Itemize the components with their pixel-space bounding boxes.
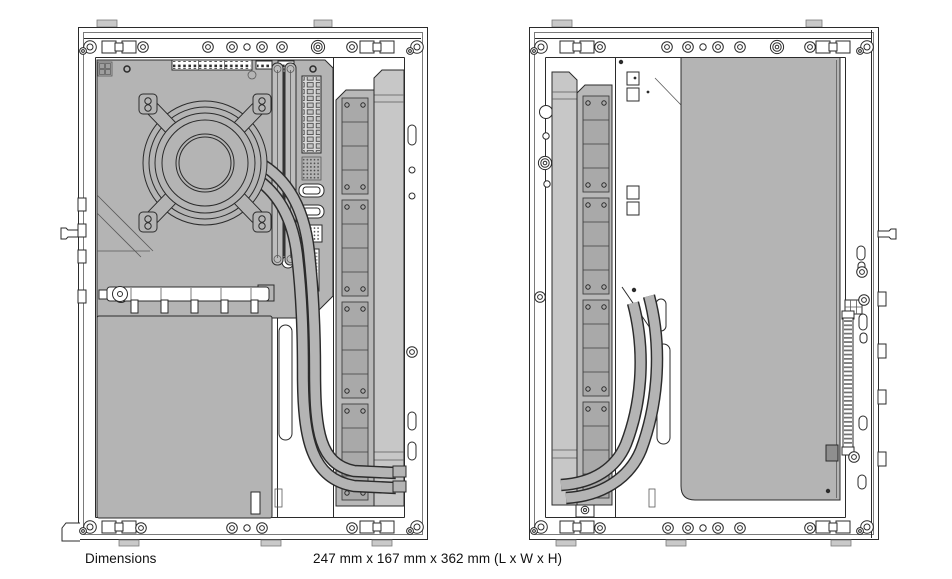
drawing-canvas xyxy=(0,0,952,548)
psu-block xyxy=(97,316,272,518)
side-panel-latch-handle xyxy=(878,229,896,239)
radiator-fan-assembly xyxy=(552,72,612,505)
left-side-view xyxy=(61,20,428,546)
atx-24pin-connector xyxy=(302,76,321,153)
right-side-view xyxy=(530,20,897,546)
gpu-block xyxy=(681,58,840,501)
spec-value: 247 mm x 167 mm x 362 mm (L x W x H) xyxy=(313,551,562,566)
gpu-support-bracket xyxy=(576,504,594,517)
dimensions-caption: Dimensions 247 mm x 167 mm x 362 mm (L x… xyxy=(0,548,952,579)
case-technical-drawing: Dimensions 247 mm x 167 mm x 362 mm (L x… xyxy=(0,0,952,579)
usb3-header-mesh xyxy=(302,157,321,180)
side-panel-latch-handle xyxy=(61,228,78,239)
radiator-fan-assembly xyxy=(336,70,404,506)
spec-label: Dimensions xyxy=(85,551,157,566)
cpu-aio-pump xyxy=(139,94,271,232)
